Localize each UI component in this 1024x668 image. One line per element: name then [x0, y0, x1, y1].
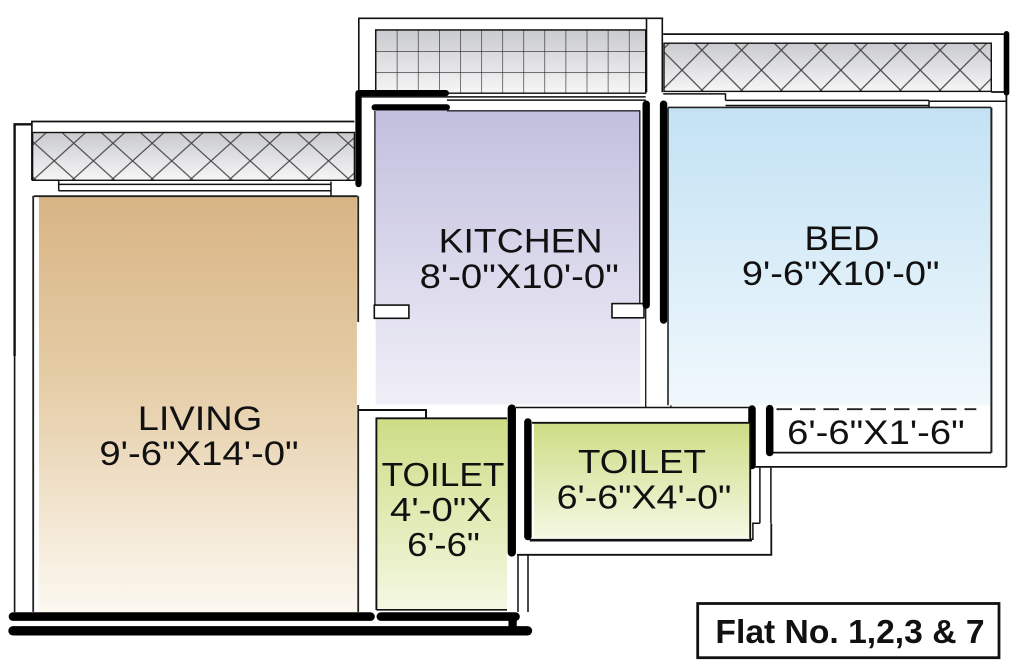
svg-text:9'-6"X10'-0": 9'-6"X10'-0" [742, 255, 940, 293]
svg-text:8'-0"X10'-0": 8'-0"X10'-0" [420, 258, 619, 296]
svg-text:TOILET: TOILET [382, 457, 505, 494]
svg-text:4'-0"X: 4'-0"X [390, 492, 492, 529]
svg-text:6'-6"X4'-0": 6'-6"X4'-0" [557, 480, 732, 517]
svg-text:TOILET: TOILET [578, 444, 706, 481]
svg-text:LIVING: LIVING [138, 400, 263, 438]
svg-text:6'-6"X1'-6": 6'-6"X1'-6" [787, 414, 965, 452]
svg-text:9'-6"X14'-0": 9'-6"X14'-0" [99, 435, 298, 473]
svg-text:KITCHEN: KITCHEN [439, 223, 603, 261]
svg-text:Flat No. 1,2,3 & 7: Flat No. 1,2,3 & 7 [715, 614, 984, 651]
svg-text:6'-6": 6'-6" [407, 527, 480, 564]
svg-text:BED: BED [805, 220, 880, 258]
